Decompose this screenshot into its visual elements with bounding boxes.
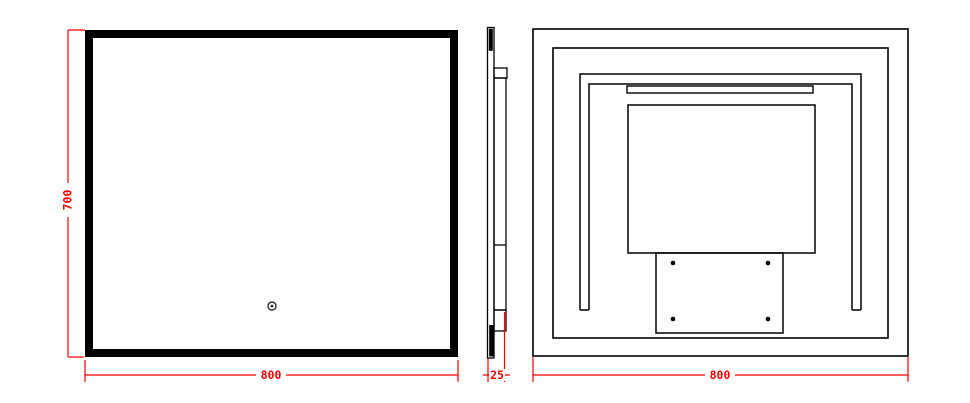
mirror-technical-drawing: 700 800 25 [0,0,970,403]
driver-box [628,105,815,253]
side-depth-label: 25 [490,368,504,382]
front-width-label: 800 [261,368,282,382]
side-glass-panel [488,28,495,359]
screw-hole-top-left [671,261,676,266]
mounting-plate [656,253,783,333]
screw-hole-bottom-left [671,317,676,322]
side-back-panel [494,78,506,310]
side-frame-fill-top [489,29,493,51]
side-top-bracket [494,68,507,78]
back-width-dimension: 800 [533,357,908,382]
hanging-slot-bar [627,86,813,93]
drawing-svg: 700 800 25 [0,0,970,403]
screw-hole-top-right [766,261,771,266]
front-view: 700 800 [61,30,459,382]
front-height-label: 700 [61,190,75,211]
screw-hole-bottom-right [766,317,771,322]
led-channel-outer [580,74,861,310]
side-frame-fill-bottom [489,325,493,357]
back-inner-panel [553,48,888,338]
back-width-label: 800 [710,368,731,382]
touch-sensor-icon [268,302,276,310]
side-view: 25 [483,28,510,383]
touch-sensor-center-dot [271,305,274,308]
front-width-dimension: 800 [85,360,458,382]
back-view: 800 [533,29,908,382]
front-height-dimension: 700 [61,30,86,357]
